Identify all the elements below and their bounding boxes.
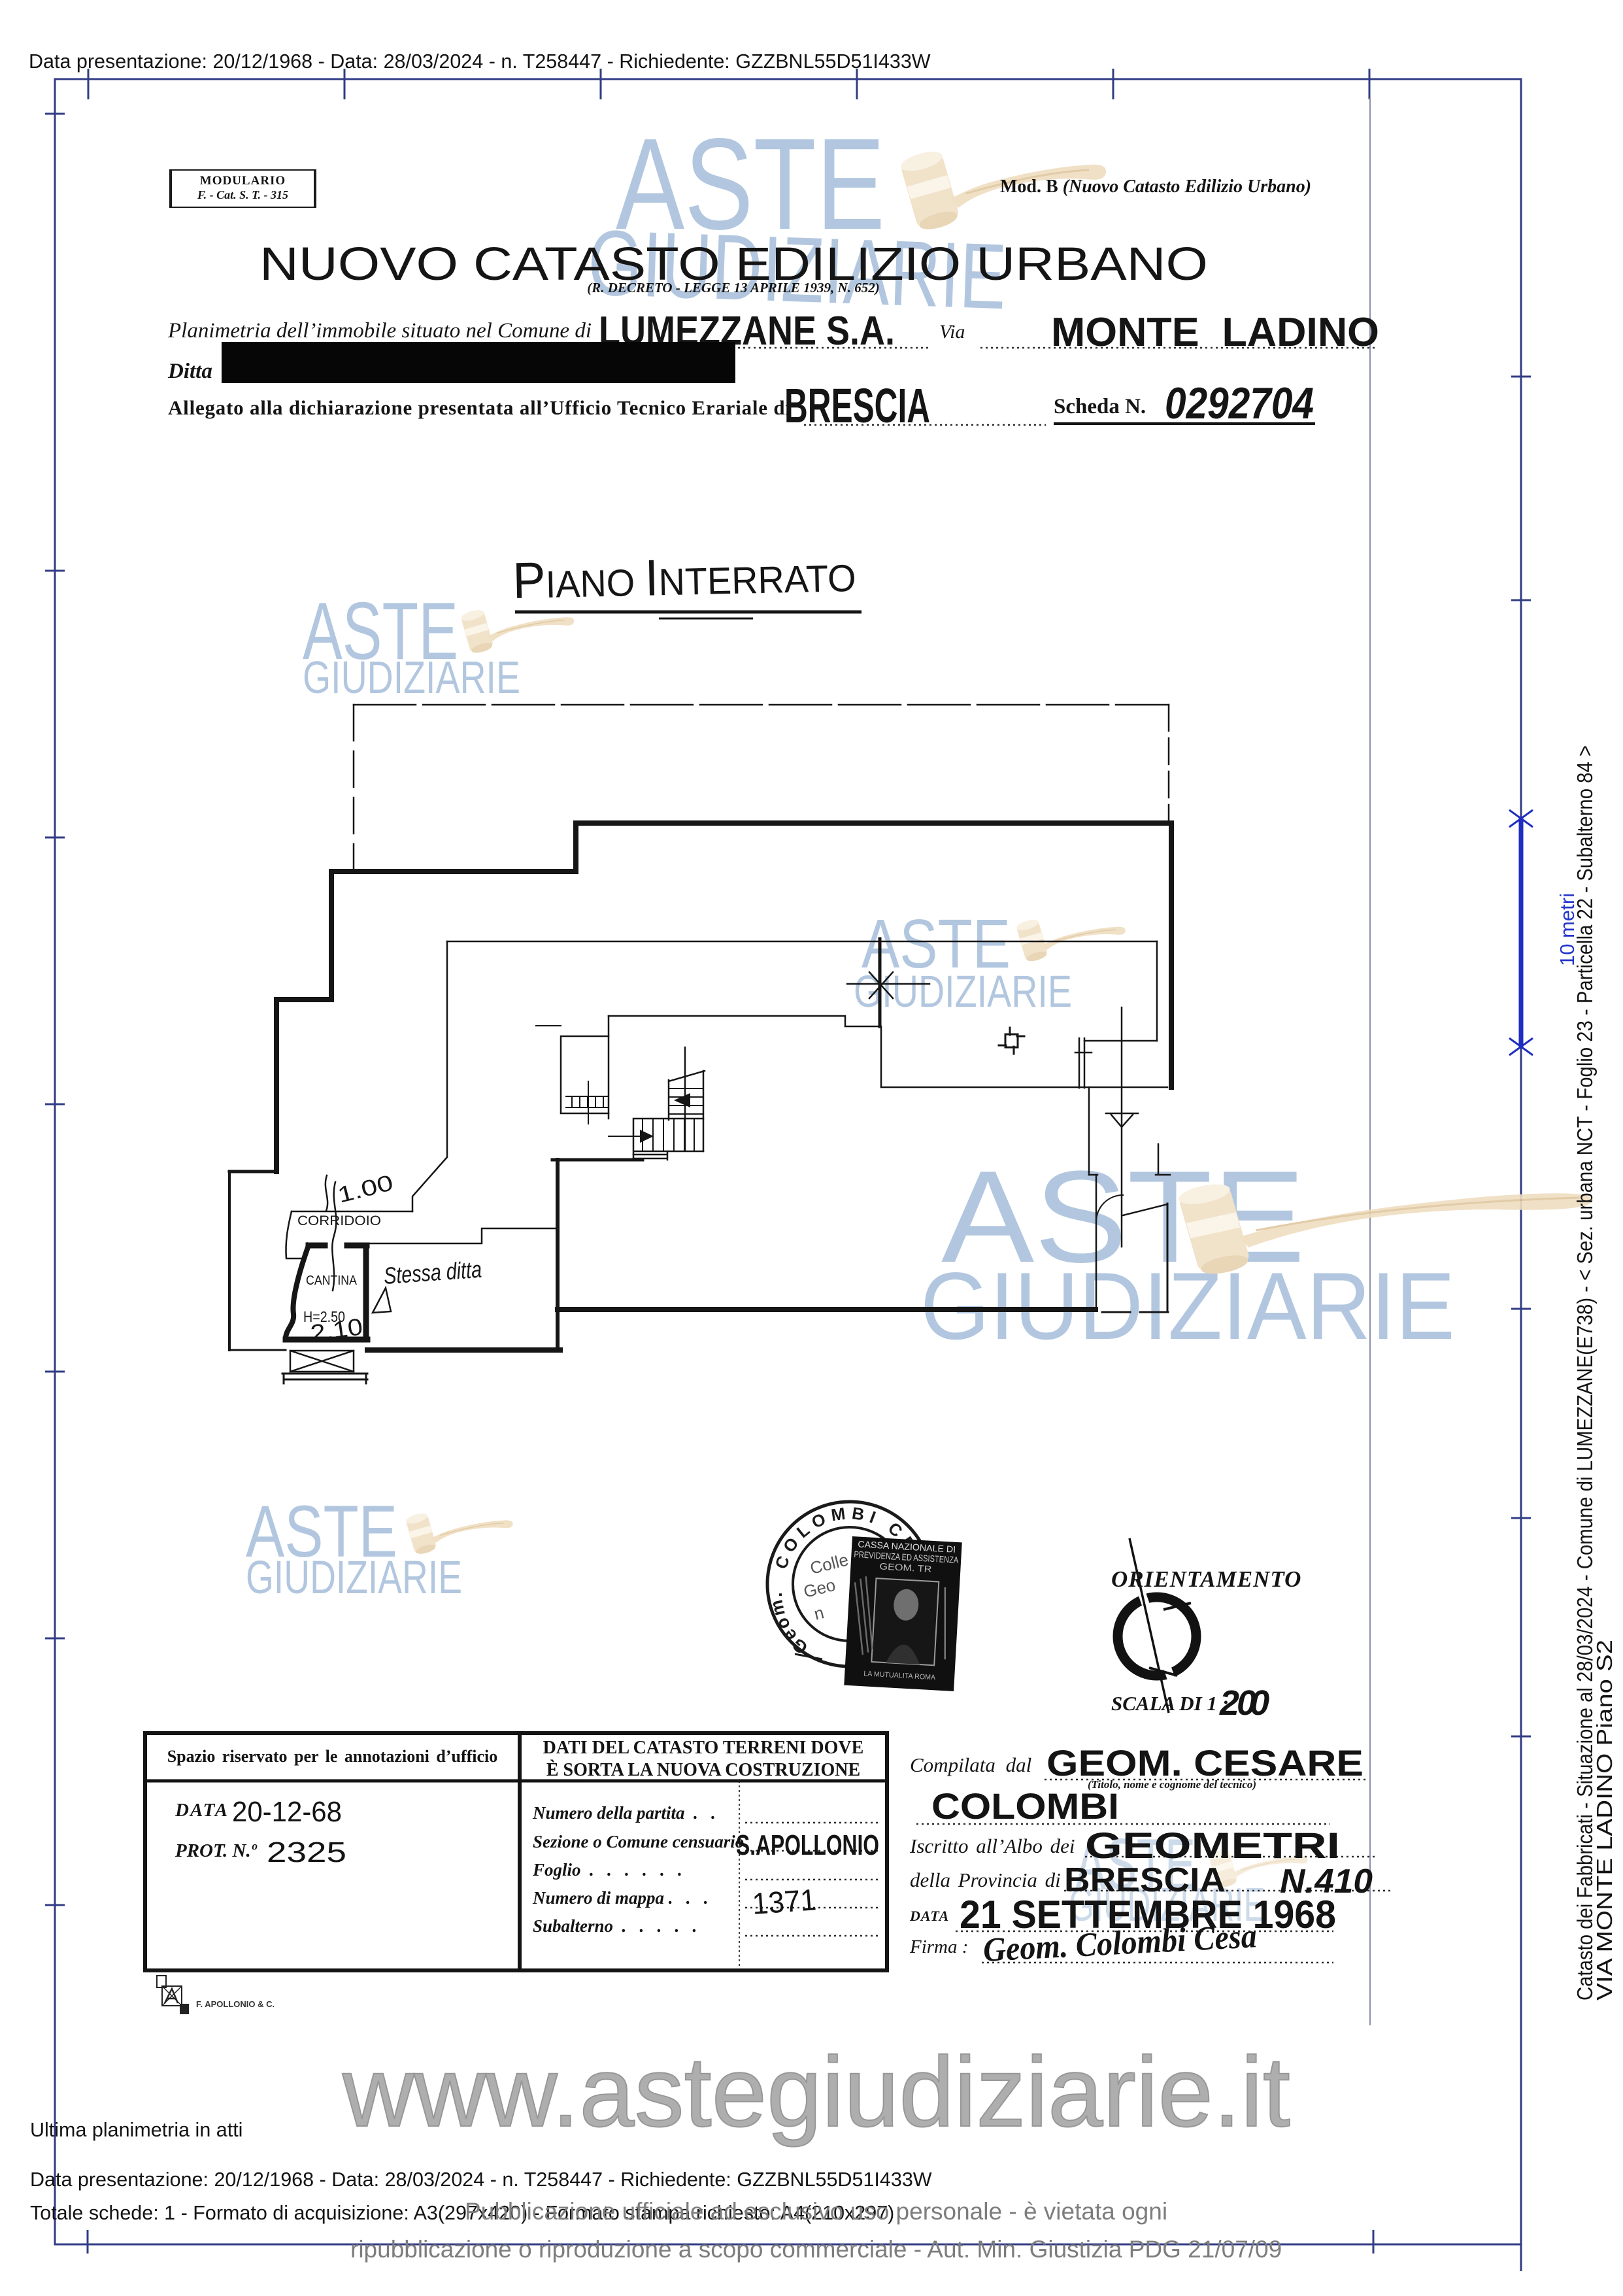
svg-text:CORRIDOIO: CORRIDOIO [297, 1213, 381, 1228]
svg-text:S.APOLLONIO: S.APOLLONIO [736, 1829, 879, 1861]
svg-text:20-12-68: 20-12-68 [232, 1796, 342, 1828]
svg-text:GIUDIZIARIE: GIUDIZIARIE [920, 1253, 1455, 1359]
svg-text:GEOM. CESARE: GEOM. CESARE [1046, 1742, 1364, 1783]
svg-text:1.00: 1.00 [335, 1170, 396, 1208]
svg-text:COLOMBI: COLOMBI [931, 1785, 1119, 1827]
svg-text:GEOMETRI: GEOMETRI [1085, 1825, 1340, 1866]
svg-text:Colle: Colle [808, 1549, 850, 1578]
svg-text:n: n [812, 1602, 826, 1624]
svg-text:CANTINA: CANTINA [306, 1274, 358, 1288]
svg-text:2325: 2325 [267, 1836, 346, 1868]
svg-text:www.astegiudiziarie.it: www.astegiudiziarie.it [342, 2036, 1290, 2148]
svg-text:Via: Via [939, 321, 965, 343]
svg-text:Geom.: Geom. [766, 1590, 812, 1658]
svg-text:0292704: 0292704 [1165, 379, 1314, 428]
svg-text:GIUDIZIARIE: GIUDIZIARIE [246, 1552, 462, 1604]
svg-text:GIUDIZIARIE: GIUDIZIARIE [303, 652, 520, 703]
svg-text:MONTE LADINO: MONTE LADINO [1051, 310, 1379, 355]
svg-text:BRESCIA: BRESCIA [784, 379, 930, 433]
svg-text:PIANO INTERRATO: PIANO INTERRATO [512, 545, 857, 609]
svg-text:1371: 1371 [751, 1882, 817, 1921]
svg-text:Allegato alla dichiarazione: Allegato alla dichiarazione presentata a… [168, 396, 791, 419]
svg-text:Stessa ditta: Stessa ditta [383, 1256, 482, 1289]
svg-text:(R. DECRETO - LEGGE 13 APRILE: (R. DECRETO - LEGGE 13 APRILE 1939, N. 6… [587, 280, 879, 295]
svg-text:Planimetria dell’immobile si: Planimetria dell’immobile situato nel Co… [167, 319, 592, 343]
svg-text:Geo: Geo [801, 1575, 837, 1602]
svg-text:Scheda N.: Scheda N. [1054, 395, 1146, 418]
svg-text:Ditta: Ditta [167, 360, 212, 383]
